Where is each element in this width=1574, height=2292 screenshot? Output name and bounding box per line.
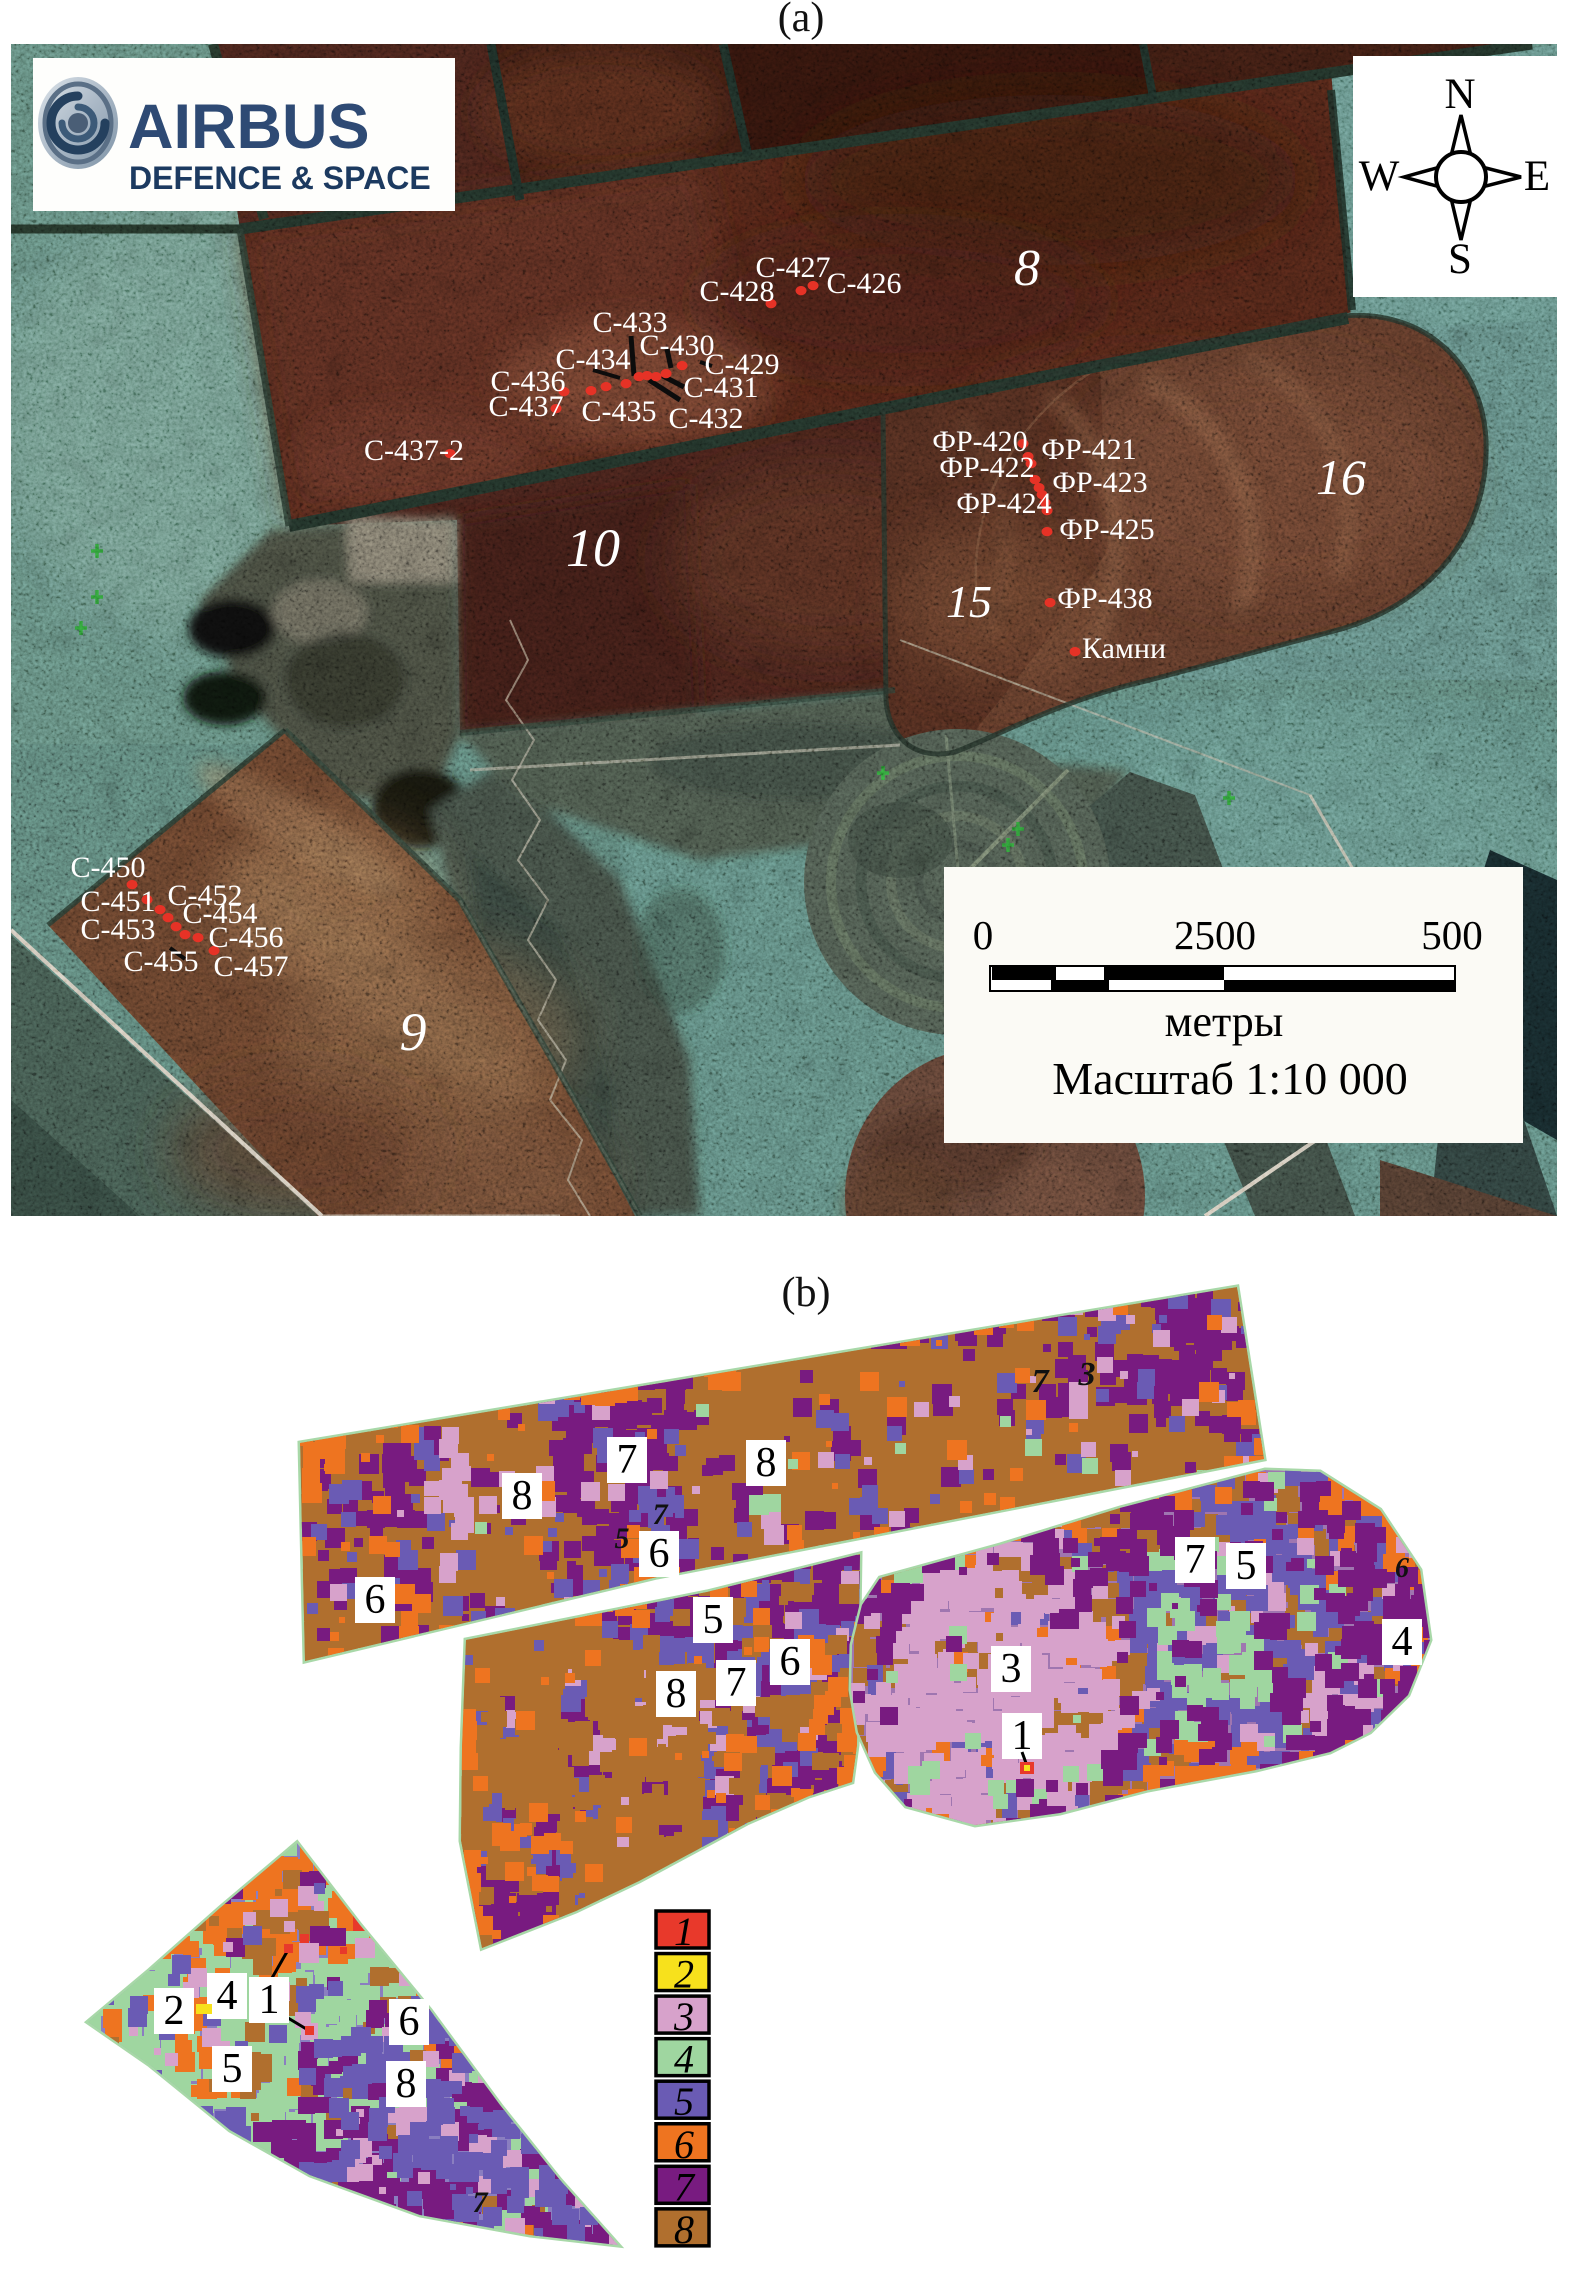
svg-text:1: 1 (674, 1909, 694, 1954)
svg-text:5: 5 (703, 1597, 724, 1643)
svg-text:C-455: C-455 (124, 945, 199, 978)
svg-text:C-437-2: C-437-2 (364, 434, 464, 467)
svg-text:3: 3 (673, 1994, 694, 2039)
svg-text:AIRBUS: AIRBUS (128, 92, 370, 162)
svg-text:Камни: Камни (1082, 632, 1166, 665)
svg-text:6: 6 (1395, 1553, 1409, 1584)
svg-text:7: 7 (674, 2164, 696, 2209)
svg-text:W: W (1359, 153, 1400, 200)
svg-text:C-428: C-428 (700, 275, 775, 308)
svg-text:5: 5 (222, 2046, 243, 2092)
svg-text:7: 7 (726, 1660, 747, 1706)
svg-text:7: 7 (473, 2186, 489, 2219)
svg-text:6: 6 (399, 1999, 420, 2045)
svg-text:C-434: C-434 (556, 343, 631, 376)
svg-text:C-437: C-437 (489, 390, 564, 423)
svg-text:C-435: C-435 (582, 395, 657, 428)
svg-text:7: 7 (1032, 1363, 1051, 1400)
svg-text:(a): (a) (778, 0, 825, 41)
svg-text:C-450: C-450 (71, 851, 146, 884)
svg-text:S: S (1448, 236, 1472, 283)
svg-text:2: 2 (164, 1988, 185, 2034)
svg-text:15: 15 (946, 576, 992, 627)
svg-text:ФР-425: ФР-425 (1059, 513, 1154, 546)
svg-text:ФР-421: ФР-421 (1041, 433, 1136, 466)
svg-text:4: 4 (217, 1973, 238, 2019)
svg-text:2500: 2500 (1174, 912, 1256, 958)
svg-text:E: E (1524, 153, 1550, 200)
svg-text:5: 5 (615, 1522, 630, 1555)
svg-text:8: 8 (756, 1440, 777, 1486)
svg-text:DEFENCE & SPACE: DEFENCE & SPACE (129, 160, 431, 196)
svg-text:1: 1 (259, 1977, 280, 2023)
svg-text:4: 4 (674, 2037, 694, 2082)
svg-text:ФР-423: ФР-423 (1052, 466, 1147, 499)
svg-text:6: 6 (365, 1577, 386, 1623)
svg-text:6: 6 (674, 2122, 694, 2167)
svg-text:ФР-438: ФР-438 (1057, 582, 1152, 615)
svg-text:0: 0 (973, 912, 994, 958)
svg-text:8: 8 (396, 2061, 417, 2107)
svg-text:3: 3 (1078, 1356, 1096, 1393)
svg-text:9: 9 (400, 1002, 427, 1062)
svg-text:N: N (1444, 71, 1475, 118)
svg-text:8: 8 (512, 1473, 533, 1519)
svg-text:C-453: C-453 (81, 913, 156, 946)
svg-text:6: 6 (780, 1639, 801, 1685)
svg-text:7: 7 (653, 1498, 669, 1531)
svg-text:8: 8 (1014, 240, 1040, 297)
svg-text:500: 500 (1421, 912, 1483, 958)
svg-text:2: 2 (674, 1952, 694, 1997)
svg-text:5: 5 (674, 2079, 694, 2124)
svg-text:C-431: C-431 (684, 371, 759, 404)
svg-text:C-432: C-432 (669, 402, 744, 435)
svg-text:7: 7 (617, 1437, 638, 1483)
svg-text:ФР-424: ФР-424 (956, 487, 1051, 520)
svg-text:ФР-422: ФР-422 (939, 451, 1034, 484)
svg-text:6: 6 (649, 1531, 670, 1577)
svg-text:10: 10 (566, 518, 620, 578)
svg-text:7: 7 (1185, 1537, 1206, 1583)
svg-text:8: 8 (666, 1671, 687, 1717)
svg-text:8: 8 (674, 2207, 694, 2252)
svg-text:16: 16 (1316, 449, 1366, 505)
svg-text:C-430: C-430 (640, 329, 715, 362)
svg-text:(b): (b) (782, 1270, 831, 1316)
svg-text:C-457: C-457 (214, 950, 289, 983)
svg-text:метры: метры (1165, 997, 1284, 1046)
svg-text:3: 3 (1001, 1646, 1022, 1692)
svg-text:4: 4 (1392, 1619, 1413, 1665)
svg-text:Масштаб 1:10 000: Масштаб 1:10 000 (1052, 1053, 1407, 1104)
svg-text:C-426: C-426 (827, 267, 902, 300)
svg-text:5: 5 (1236, 1543, 1257, 1589)
